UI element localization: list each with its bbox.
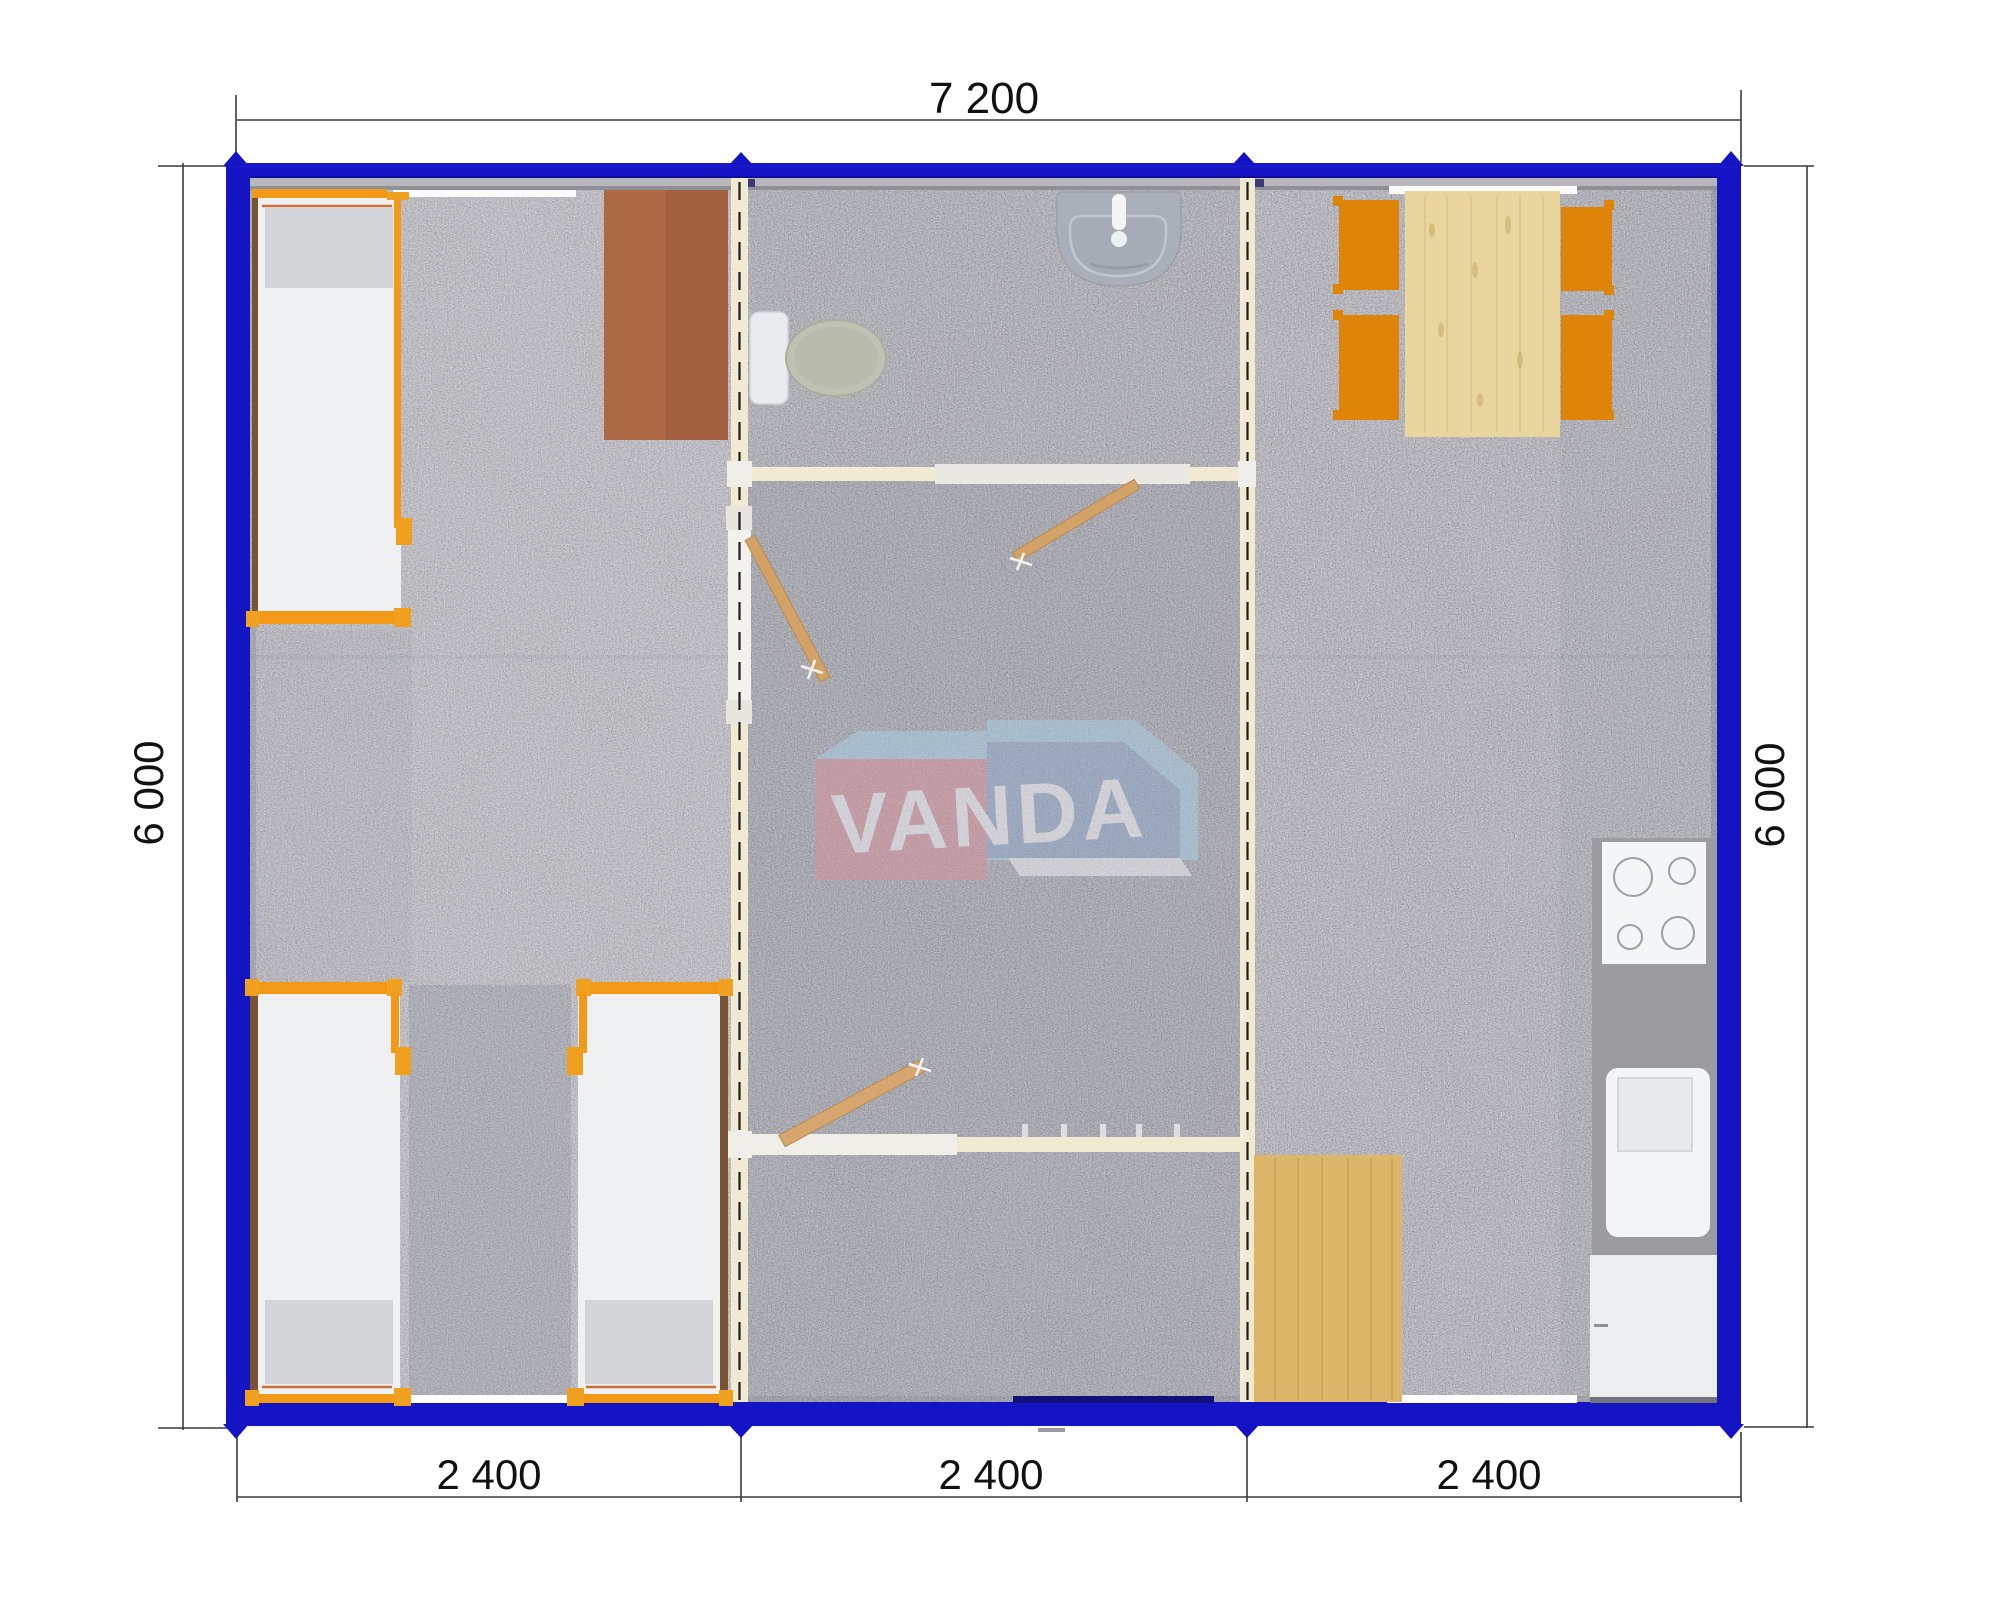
svg-text:2 400: 2 400 — [938, 1451, 1043, 1498]
svg-text:6 000: 6 000 — [125, 740, 172, 845]
svg-text:6 000: 6 000 — [1746, 742, 1793, 847]
svg-text:VANDA: VANDA — [829, 760, 1150, 872]
svg-text:2 400: 2 400 — [436, 1451, 541, 1498]
svg-text:7 200: 7 200 — [929, 74, 1039, 123]
svg-text:2 400: 2 400 — [1436, 1451, 1541, 1498]
